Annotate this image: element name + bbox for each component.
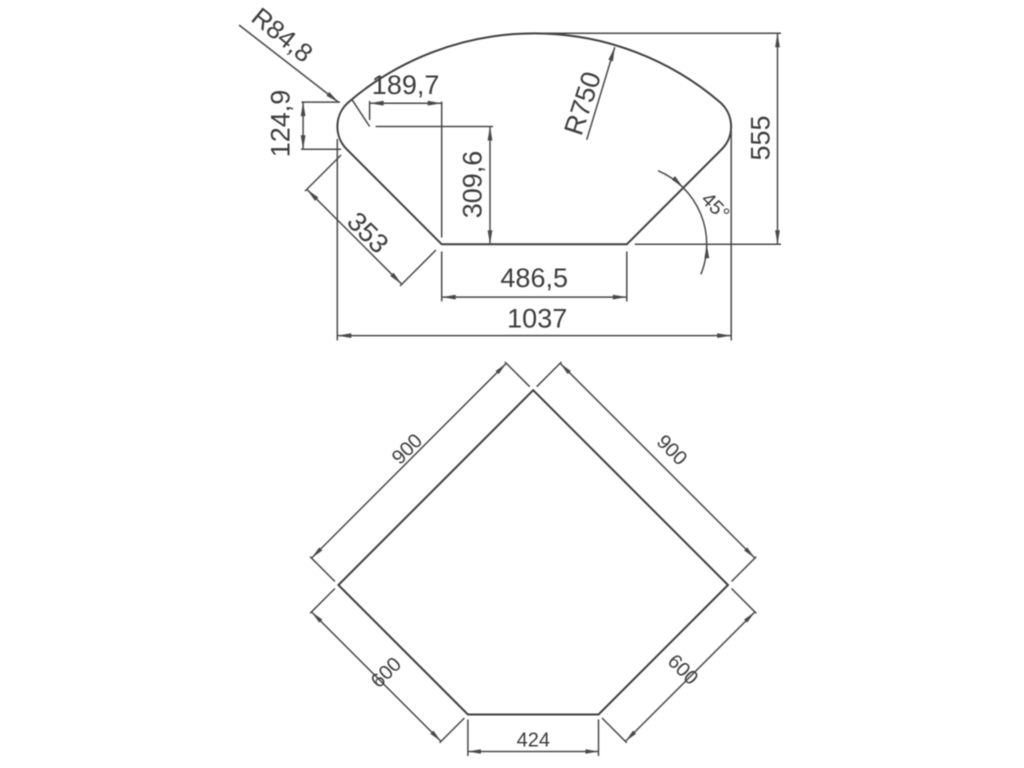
svg-text:600: 600 — [663, 650, 702, 689]
svg-text:353: 353 — [341, 206, 394, 259]
svg-text:189,7: 189,7 — [372, 70, 440, 100]
svg-text:900: 900 — [388, 430, 427, 469]
svg-text:R750: R750 — [558, 68, 606, 139]
svg-text:124,9: 124,9 — [266, 90, 296, 158]
svg-text:486,5: 486,5 — [500, 263, 568, 293]
svg-text:900: 900 — [652, 431, 691, 470]
svg-text:600: 600 — [367, 653, 406, 692]
svg-text:309,6: 309,6 — [458, 151, 488, 219]
svg-text:424: 424 — [517, 729, 550, 751]
svg-text:555: 555 — [746, 115, 776, 160]
svg-text:1037: 1037 — [507, 304, 567, 334]
svg-text:45°: 45° — [697, 189, 734, 226]
